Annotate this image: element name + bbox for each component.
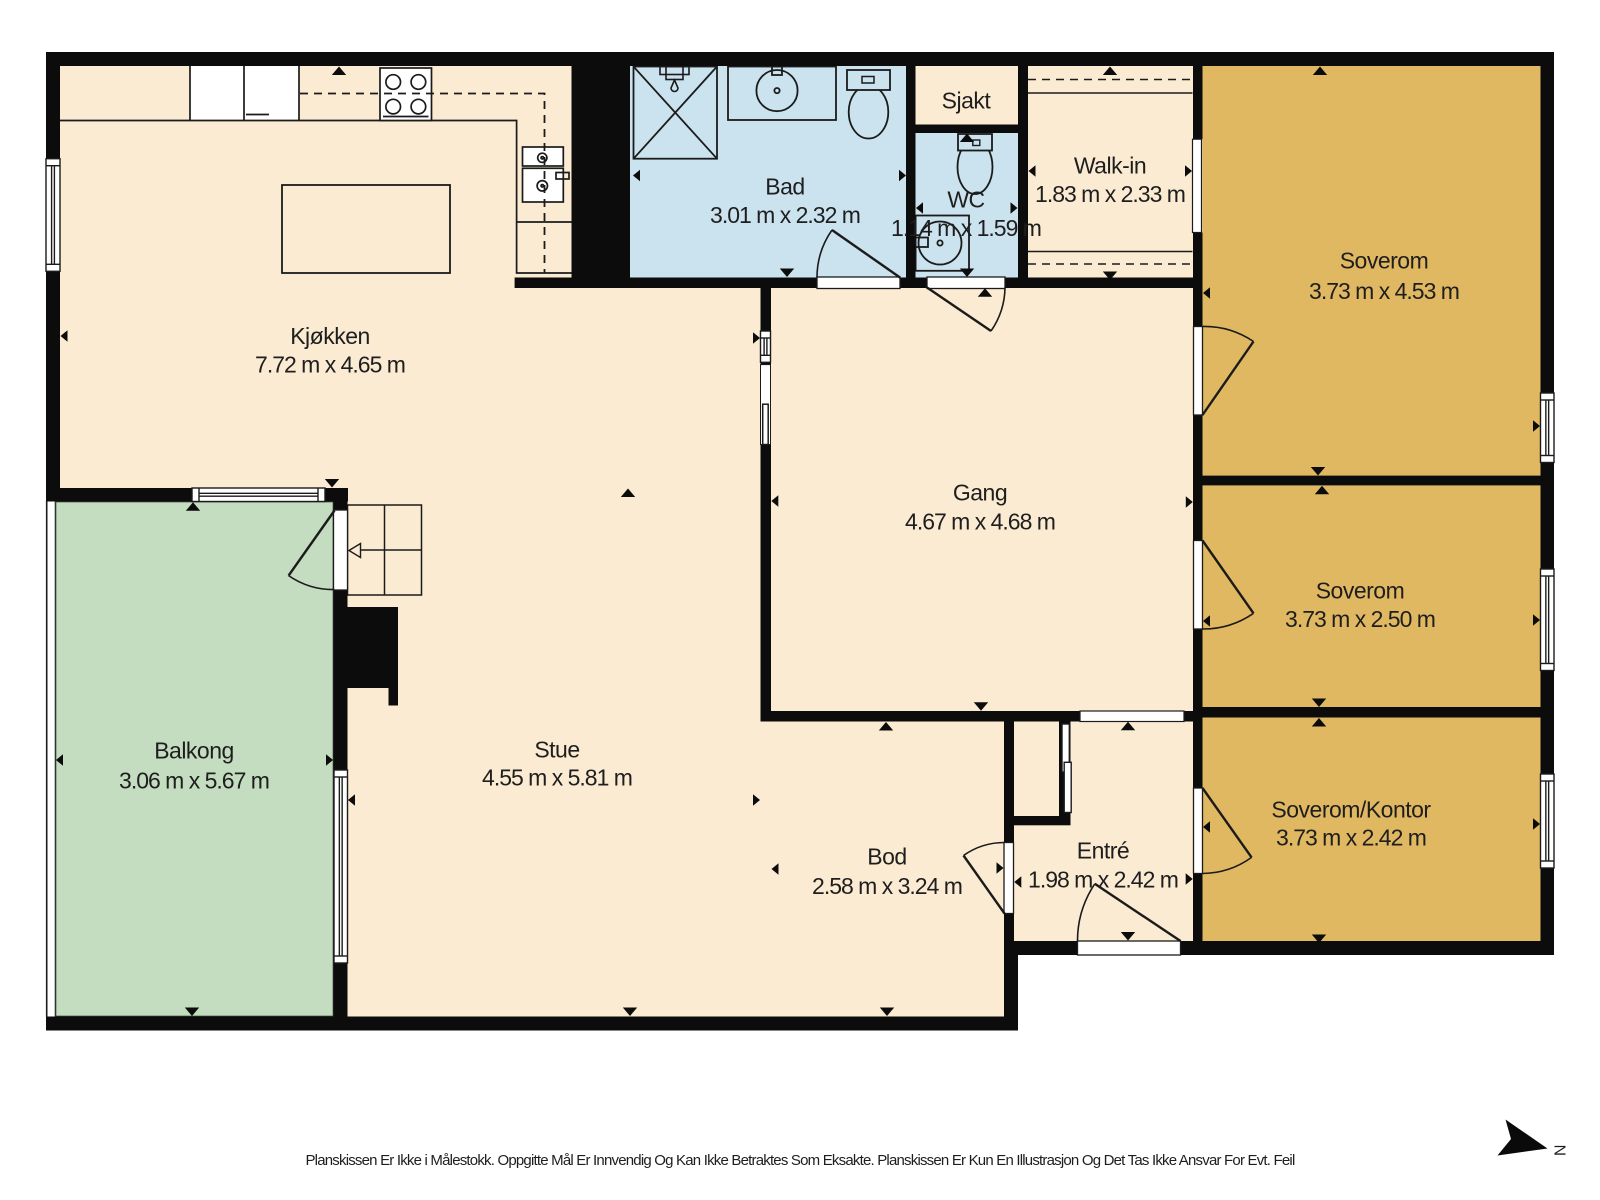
svg-text:Stue: Stue bbox=[534, 737, 579, 763]
svg-text:Walk-in: Walk-in bbox=[1074, 153, 1146, 179]
svg-text:Gang: Gang bbox=[953, 480, 1007, 506]
svg-text:WC: WC bbox=[947, 187, 984, 213]
svg-text:3.01 m x 2.32 m: 3.01 m x 2.32 m bbox=[710, 202, 860, 228]
svg-text:Entré: Entré bbox=[1077, 838, 1129, 864]
svg-text:4.67 m x 4.68 m: 4.67 m x 4.68 m bbox=[905, 509, 1055, 535]
svg-text:Soverom/Kontor: Soverom/Kontor bbox=[1271, 797, 1431, 823]
svg-text:Bod: Bod bbox=[867, 844, 906, 870]
svg-text:Soverom: Soverom bbox=[1316, 578, 1405, 604]
svg-text:7.72 m x 4.65 m: 7.72 m x 4.65 m bbox=[255, 352, 405, 378]
svg-text:Sjakt: Sjakt bbox=[942, 88, 992, 114]
svg-text:3.73 m x 4.53 m: 3.73 m x 4.53 m bbox=[1309, 278, 1459, 304]
svg-text:2.58 m x 3.24 m: 2.58 m x 3.24 m bbox=[812, 873, 962, 899]
svg-text:Planskissen Er Ikke i Målestok: Planskissen Er Ikke i Målestokk. Oppgitt… bbox=[305, 1152, 1294, 1169]
svg-text:1.14 m x 1.59 m: 1.14 m x 1.59 m bbox=[891, 215, 1041, 241]
svg-text:Kjøkken: Kjøkken bbox=[290, 323, 370, 349]
svg-text:3.06 m x 5.67 m: 3.06 m x 5.67 m bbox=[119, 768, 269, 794]
svg-text:3.73 m x 2.50 m: 3.73 m x 2.50 m bbox=[1285, 606, 1435, 632]
svg-text:Bad: Bad bbox=[765, 174, 804, 200]
svg-text:Soverom: Soverom bbox=[1340, 248, 1429, 274]
svg-text:4.55 m x 5.81 m: 4.55 m x 5.81 m bbox=[482, 765, 632, 791]
svg-text:Balkong: Balkong bbox=[154, 738, 234, 764]
svg-text:N: N bbox=[1551, 1145, 1568, 1157]
svg-text:3.73 m x 2.42 m: 3.73 m x 2.42 m bbox=[1276, 825, 1426, 851]
svg-text:1.98 m x 2.42 m: 1.98 m x 2.42 m bbox=[1028, 867, 1178, 893]
svg-text:1.83 m x 2.33 m: 1.83 m x 2.33 m bbox=[1035, 181, 1185, 207]
